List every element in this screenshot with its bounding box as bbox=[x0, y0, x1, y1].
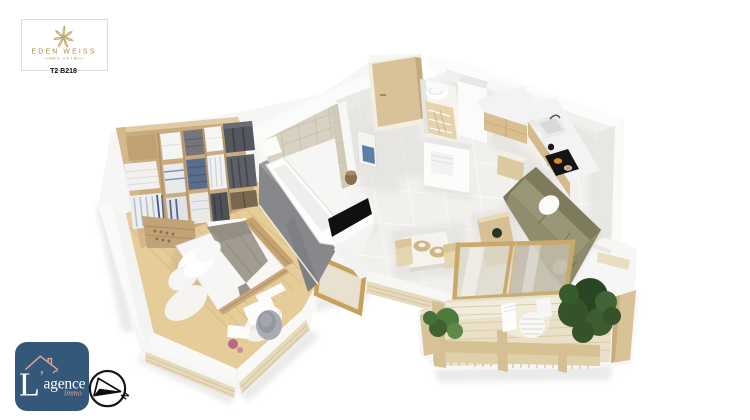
svg-text:EDEN WEISS: EDEN WEISS bbox=[32, 49, 97, 56]
svg-text:L: L bbox=[19, 367, 40, 404]
svg-text:LES GETS: LES GETS bbox=[50, 57, 77, 61]
